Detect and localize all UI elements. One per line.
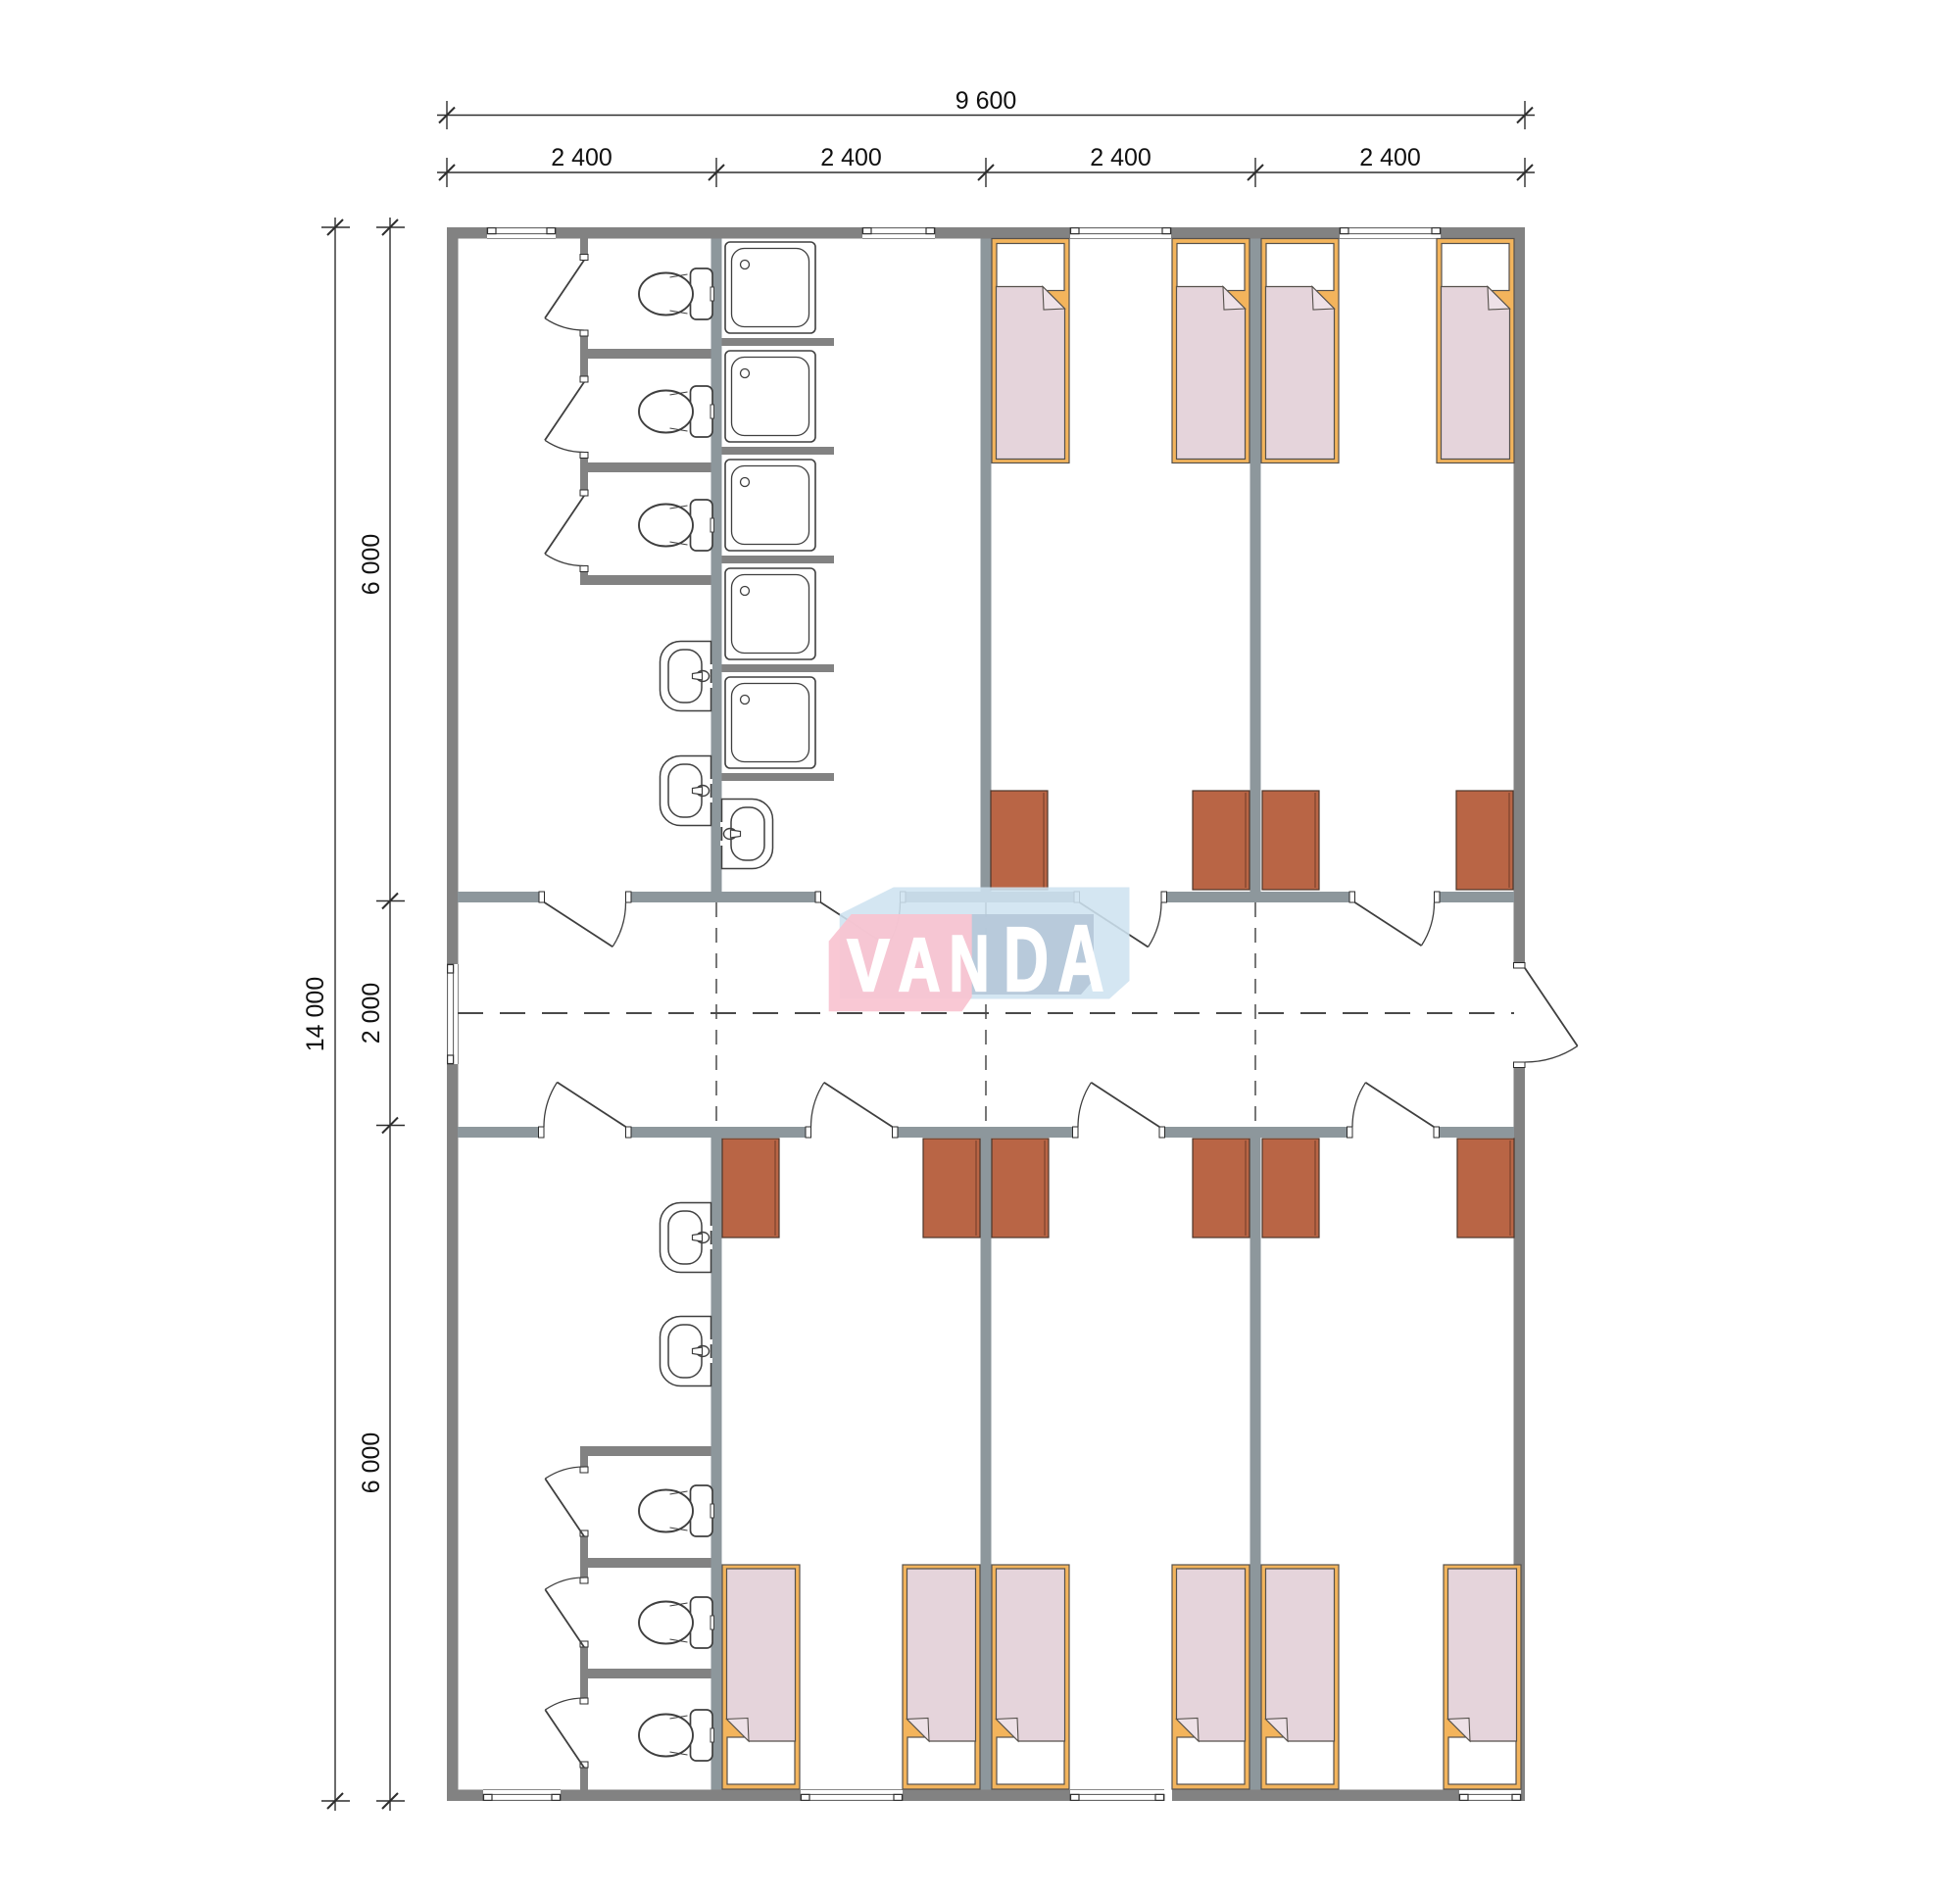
svg-text:14 000: 14 000	[302, 977, 329, 1051]
svg-text:N: N	[950, 920, 990, 1008]
svg-text:V: V	[848, 924, 890, 1006]
svg-text:6 000: 6 000	[358, 1433, 385, 1494]
svg-text:2 400: 2 400	[551, 144, 612, 171]
svg-text:2 000: 2 000	[358, 983, 385, 1044]
svg-text:2 400: 2 400	[1359, 144, 1421, 171]
svg-text:A: A	[899, 923, 941, 1007]
svg-text:2 400: 2 400	[820, 144, 882, 171]
svg-text:9 600: 9 600	[955, 87, 1017, 115]
svg-text:D: D	[1004, 908, 1049, 1010]
svg-text:6 000: 6 000	[358, 534, 385, 596]
svg-text:2 400: 2 400	[1090, 144, 1151, 171]
svg-text:A: A	[1058, 906, 1104, 1011]
